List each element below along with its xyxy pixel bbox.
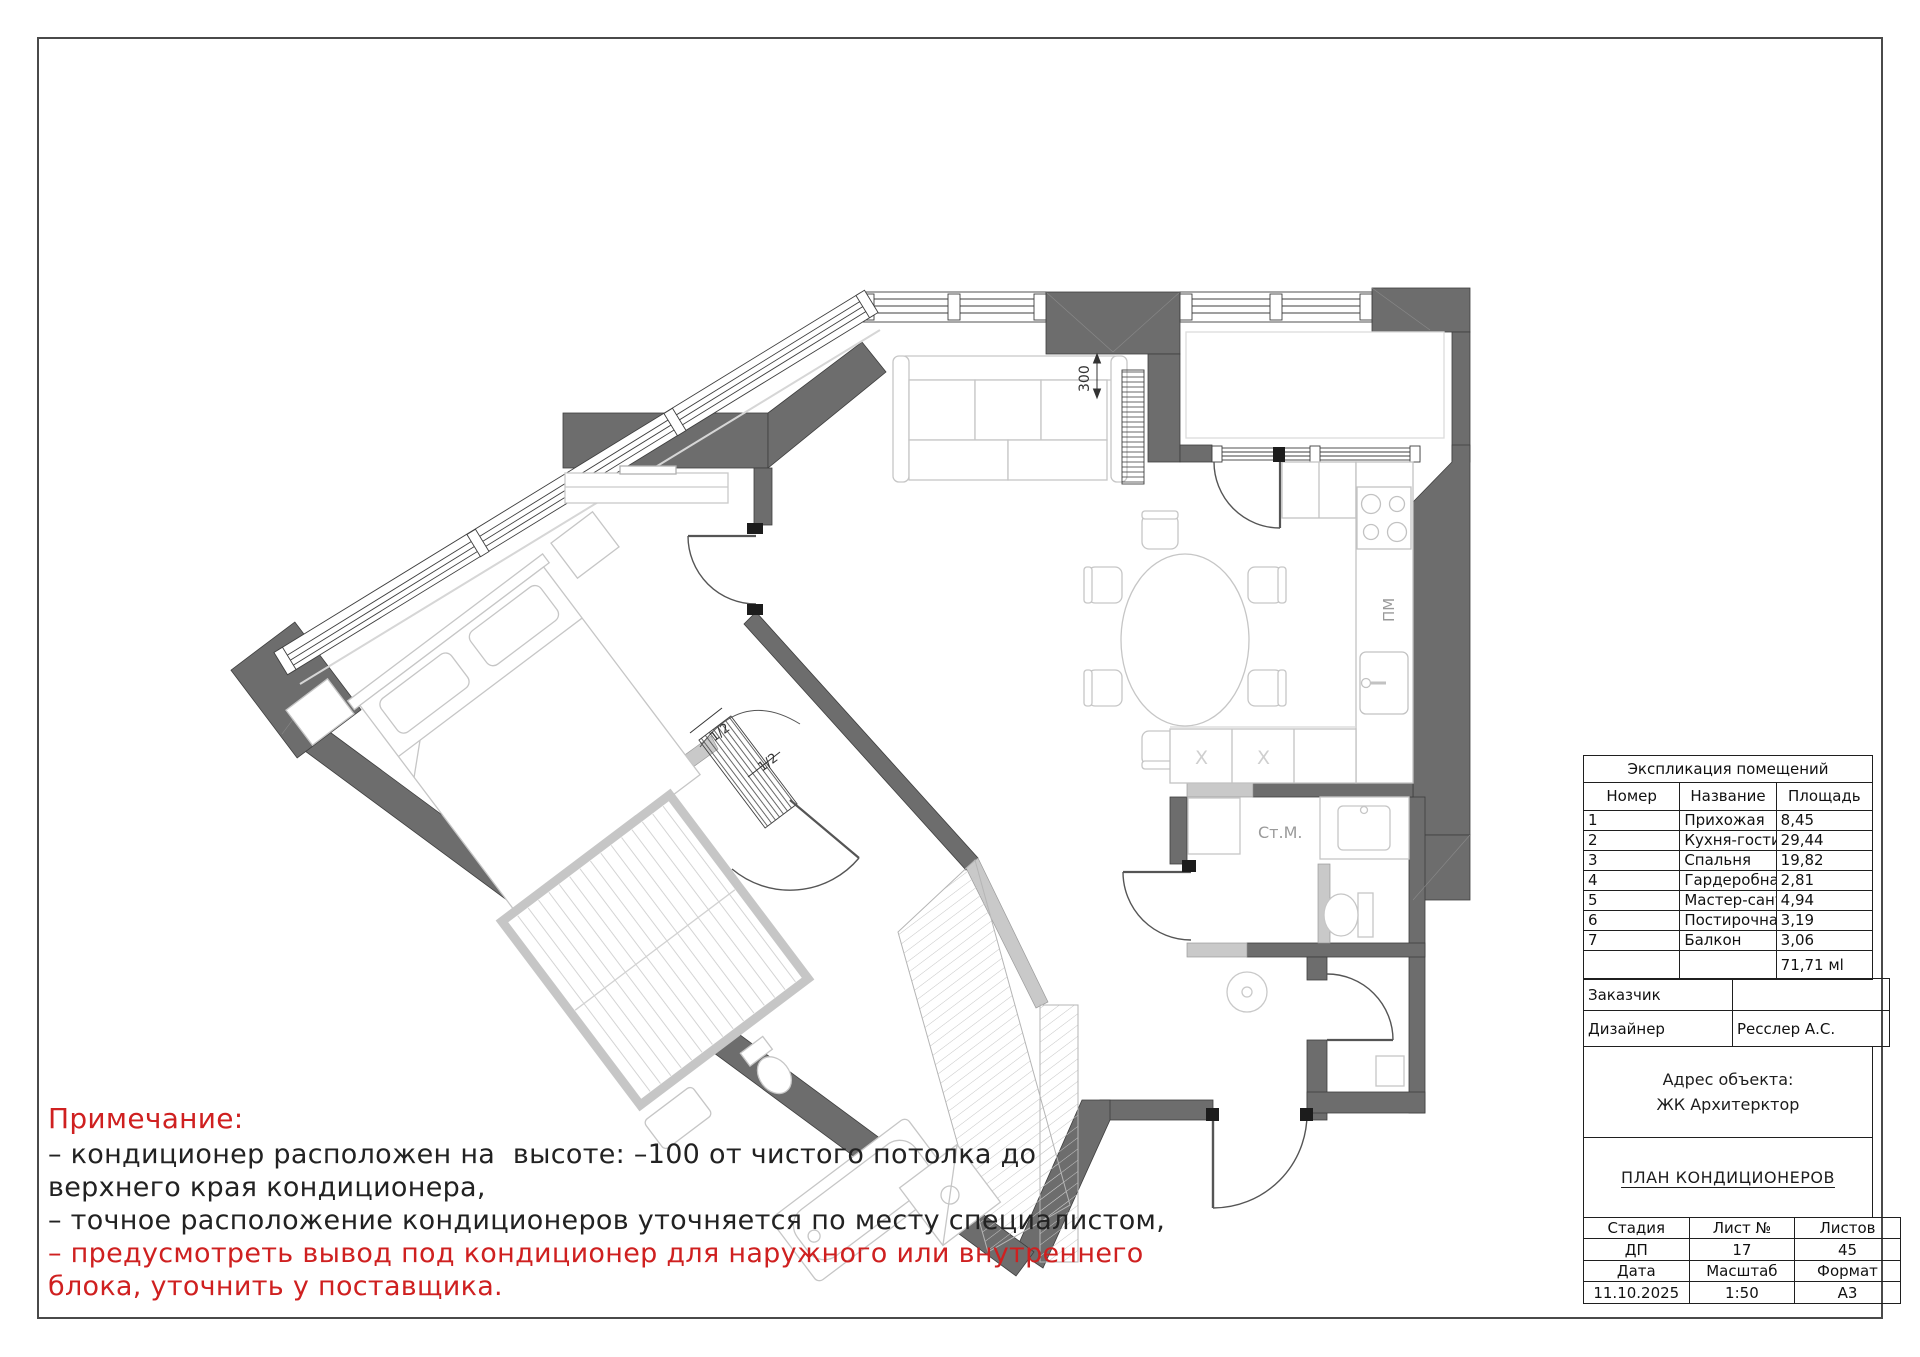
customer-value [1733,979,1890,1011]
note-line: – точное расположение кондиционеров уточ… [48,1204,1128,1237]
meta-table: Заказчик Дизайнер Ресслер А.С. [1583,978,1890,1047]
table-row: 6 Постирочная 3,19 [1584,910,1873,930]
dishwasher-label: ПМ [1380,598,1398,622]
designer-label: Дизайнер [1584,1011,1733,1047]
address-value: ЖК Архитерктор [1657,1092,1800,1117]
table-row: 3 Спальня 19,82 [1584,850,1873,870]
balcony-outline [1186,332,1444,438]
table-row: 2 Кухня-гостиная 29,44 [1584,830,1873,850]
stage-label: Стадия [1584,1217,1690,1239]
sliding-door [690,708,800,828]
scale-label: Масштаб [1689,1260,1795,1282]
sheets-value: 45 [1795,1239,1901,1261]
stamp-grid: Стадия Лист № Листов ДП 17 45 Дата Масшт… [1583,1217,1901,1304]
address-label: Адрес объекта: [1663,1067,1794,1092]
designer-value: Ресслер А.С. [1733,1011,1890,1047]
table-row: 5 Мастер-санузел 4,94 [1584,890,1873,910]
explication-title: Экспликация помещений [1584,755,1873,782]
notes-title: Примечание: [48,1102,1128,1135]
cabinet-x-mark: X [1257,747,1270,769]
wc-sink [1376,1056,1404,1086]
col-header: Площадь [1776,782,1872,810]
laundry-toilet [1324,893,1373,937]
col-header: Номер [1584,782,1680,810]
notes: Примечание: – кондиционер расположен на … [48,1102,1128,1303]
nightstand [551,512,619,578]
washing-machine [1188,798,1240,854]
ac-unit [1122,370,1144,484]
object-address: Адрес объекта: ЖК Архитерктор [1583,1047,1873,1138]
sheet-value: 17 [1689,1239,1795,1261]
date-value: 11.10.2025 [1584,1282,1690,1304]
total-row: 71,71 мl [1584,950,1873,979]
stage-value: ДП [1584,1239,1690,1261]
date-label: Дата [1584,1260,1690,1282]
table-row: 4 Гардеробная 2,81 [1584,870,1873,890]
dim-300-label: 300 [1077,365,1093,392]
title-block: Экспликация помещений Номер Название Пло… [1583,756,1873,1304]
floor-drain [1227,972,1267,1012]
laundry-sink [1320,797,1409,859]
sheets-label: Листов [1795,1217,1901,1239]
explication-table: Экспликация помещений Номер Название Пло… [1583,755,1873,980]
drawing-sheet: { "notes": { "title": "Примечание:", "li… [0,0,1920,1357]
format-label: Формат [1795,1260,1901,1282]
drawing-title: ПЛАН КОНДИЦИОНЕРОВ [1583,1138,1873,1218]
format-value: А3 [1795,1282,1901,1304]
note-line: – предусмотреть вывод под кондиционер дл… [48,1237,1128,1270]
table-row: 1 Прихожая 8,45 [1584,810,1873,830]
total-area: 71,71 мl [1776,950,1872,979]
cabinet-x-mark: X [1195,747,1208,769]
note-line: блока, уточнить у поставщика. [48,1270,1128,1303]
sheet-label: Лист № [1689,1217,1795,1239]
washing-machine-label: Ст.М. [1258,823,1302,842]
note-line: верхнего края кондиционера, [48,1171,1128,1204]
table-row: 7 Балкон 3,06 [1584,930,1873,950]
scale-value: 1:50 [1689,1282,1795,1304]
customer-label: Заказчик [1584,979,1733,1011]
note-line: – кондиционер расположен на высоте: –100… [48,1138,1128,1171]
col-header: Название [1680,782,1776,810]
